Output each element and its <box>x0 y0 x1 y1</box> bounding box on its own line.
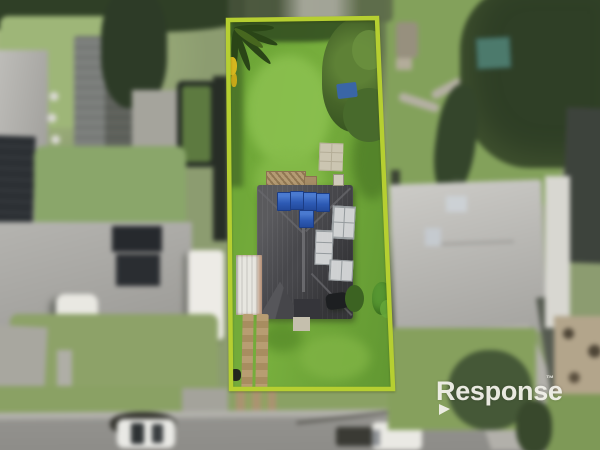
parked-car-windshield <box>131 423 144 444</box>
front-lawn-highlight <box>300 335 370 380</box>
lawn-highlight-a <box>246 55 331 165</box>
parked-ute-cab-glass <box>372 430 380 446</box>
fence-beside-lot-left <box>213 76 228 241</box>
skylight-a <box>446 196 467 212</box>
far-right-wall <box>545 176 570 328</box>
bush <box>345 285 364 312</box>
teal-shed <box>475 36 512 70</box>
white-roof-panels-a <box>331 205 356 239</box>
watermark-logo-tail-icon <box>438 404 451 416</box>
neighbor-pool-water <box>182 86 211 162</box>
watermark-trademark: ™ <box>546 374 554 383</box>
aerial-photo: Response ™ <box>0 0 600 450</box>
dark-spot-front <box>230 369 241 381</box>
dirt-driveway-track <box>255 314 268 390</box>
solar-panel <box>316 193 330 212</box>
skylight-b <box>425 228 441 246</box>
roof-ridge <box>302 228 305 292</box>
chimney <box>333 174 344 186</box>
watermark-brand-text: Response <box>436 376 563 407</box>
neighbor-driveway-left <box>0 325 48 392</box>
parked-car <box>117 419 175 448</box>
watermark: Response ™ <box>424 376 574 420</box>
white-roof-panels-c <box>328 259 353 281</box>
front-door-path <box>293 317 310 331</box>
porch-shadow <box>294 299 320 319</box>
solar-panel <box>277 192 291 211</box>
yellow-garden-object <box>227 57 237 75</box>
garden-structure-a <box>396 22 418 58</box>
concrete-pad <box>319 143 344 172</box>
neighbor-solar-a <box>112 226 162 252</box>
dirt-driveway-track <box>241 314 253 390</box>
solar-panel <box>290 191 304 210</box>
parked-car-rear-window <box>152 424 163 443</box>
solar-panel <box>299 210 314 228</box>
neighbor-house-right-roof <box>389 179 546 336</box>
garden-structure-b <box>396 58 412 70</box>
carport-roof <box>236 255 262 315</box>
neighbor-solar-b <box>116 254 160 286</box>
blue-tarp <box>336 82 358 99</box>
neighbor-solar-far-left <box>0 135 36 234</box>
solar-panel <box>303 192 317 211</box>
